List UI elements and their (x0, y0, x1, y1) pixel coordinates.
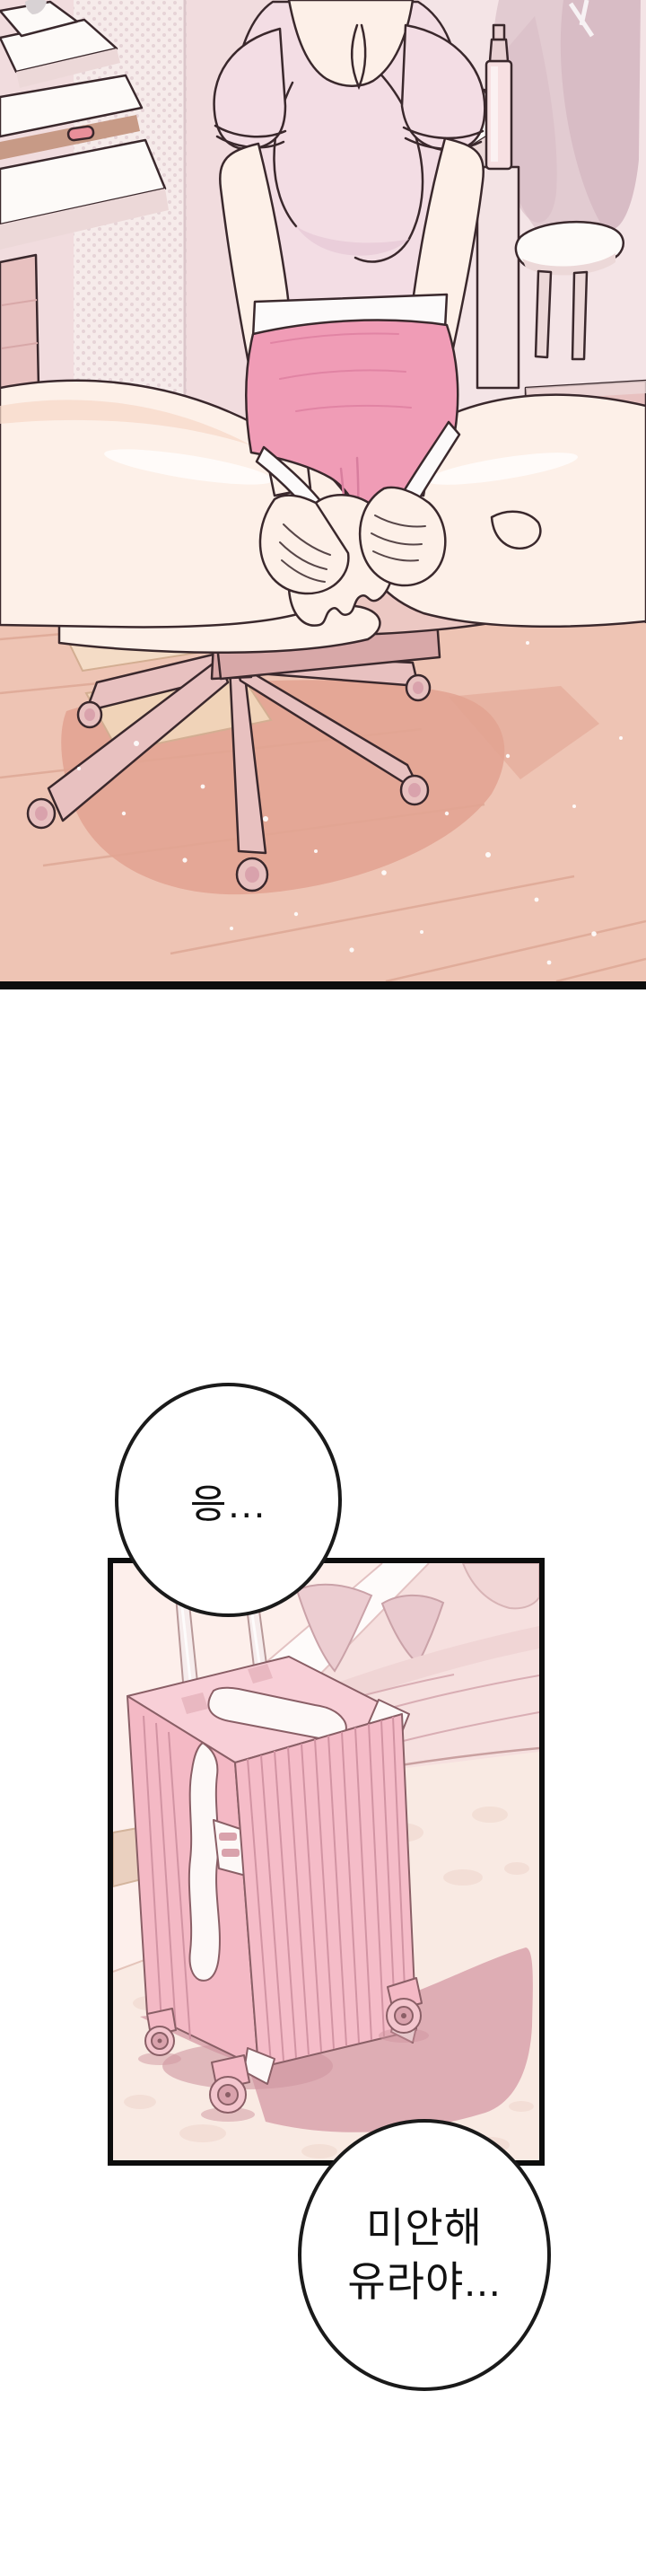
speech-bubble-2-line1: 미안해 (347, 2202, 501, 2255)
speech-bubble-2: 미안해 유라야... (298, 2119, 551, 2391)
speech-bubble-1: 응... (115, 1383, 342, 1617)
panel-2 (108, 1558, 545, 2166)
panel-1-artwork (0, 0, 646, 981)
panel-2-artwork (113, 1563, 539, 2160)
speech-bubble-2-text: 미안해 유라야... (347, 2202, 501, 2309)
zipper-strip (189, 1743, 220, 1981)
drawer-unit (0, 255, 39, 395)
speech-bubble-1-text: 응... (190, 1472, 266, 1529)
speech-bubble-2-line2: 유라야... (347, 2255, 501, 2309)
lipstick (67, 126, 94, 141)
webtoon-page: 응... 미안해 유라야... (0, 0, 646, 2576)
panel-1 (0, 0, 646, 989)
